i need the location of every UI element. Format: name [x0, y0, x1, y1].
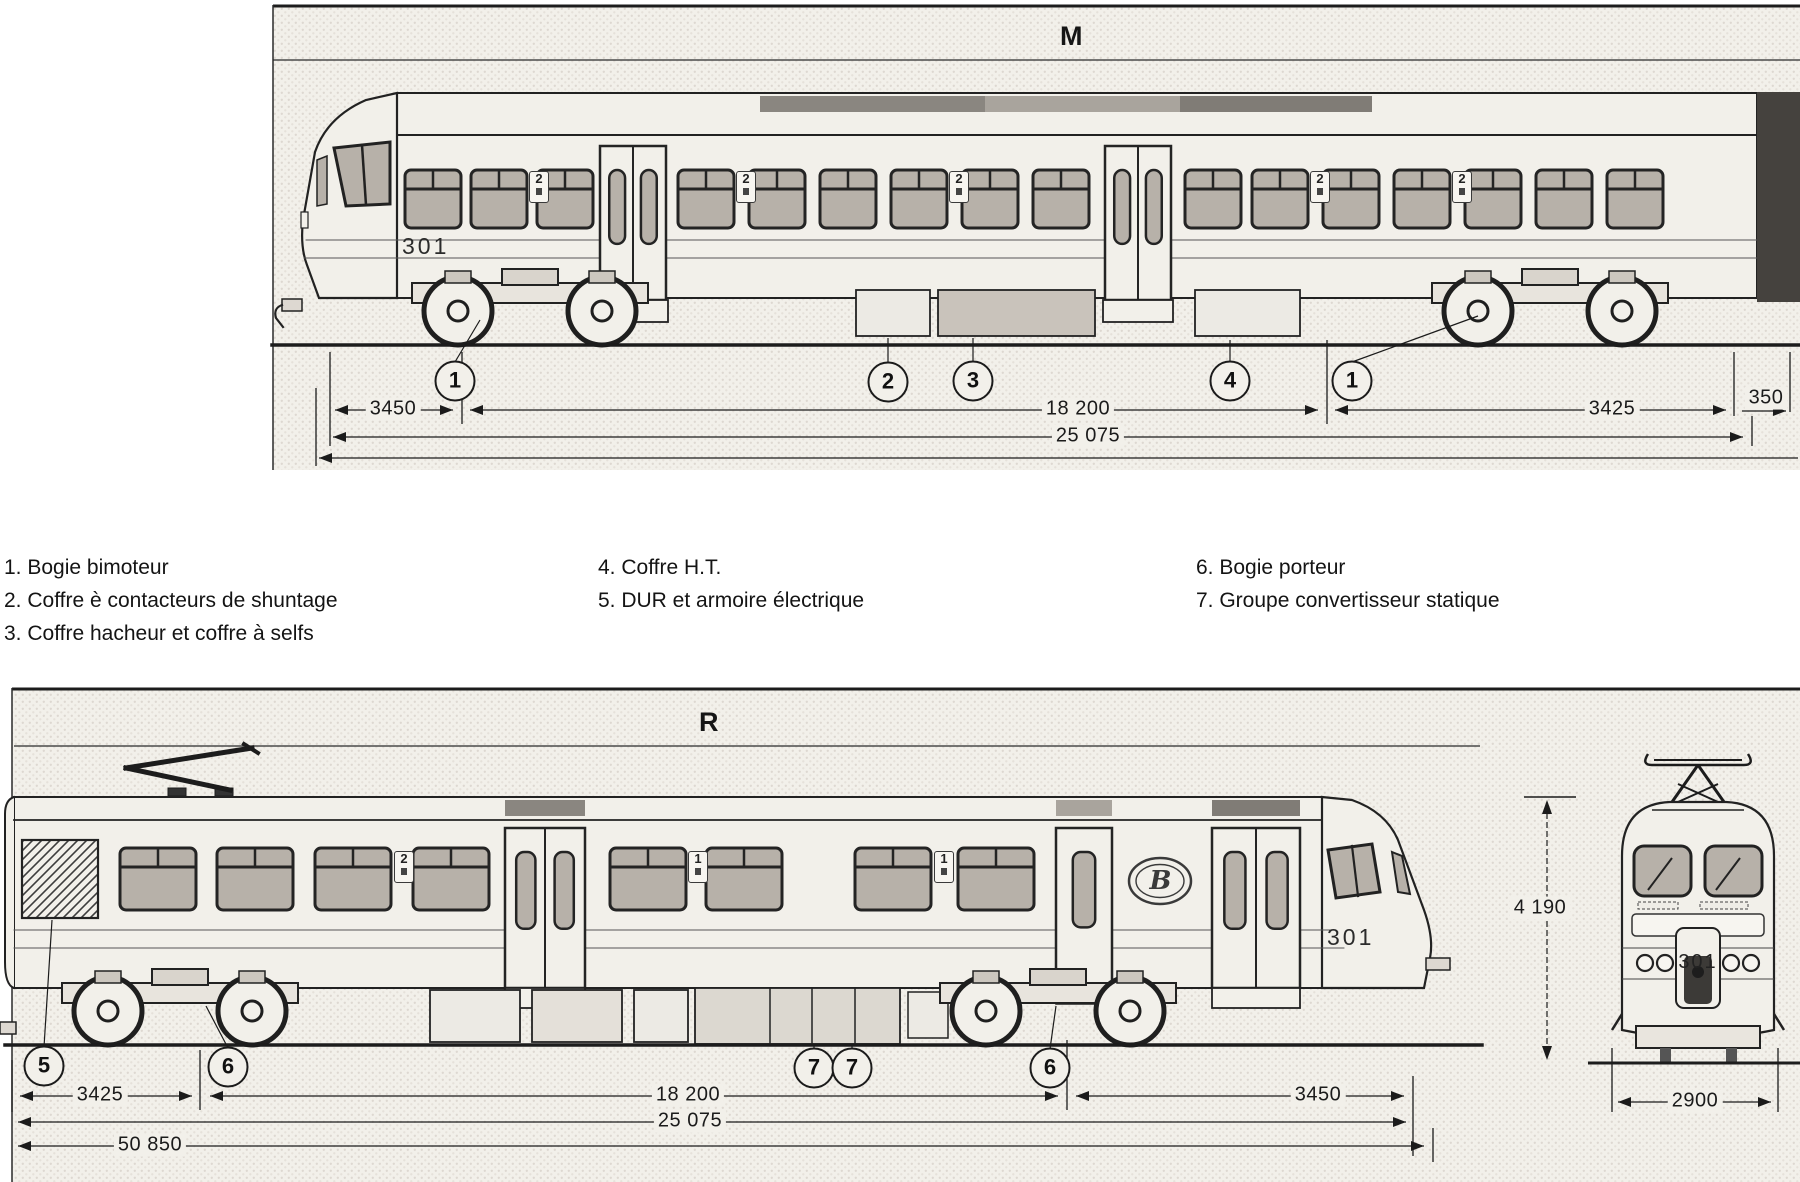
- legend-item: 2. Coffre è contacteurs de shuntage: [4, 584, 338, 617]
- door-window: [516, 852, 535, 929]
- axlebox: [589, 271, 615, 283]
- dimension-label: 2900: [1668, 1090, 1723, 1113]
- bogie-bolster: [152, 969, 208, 985]
- legend-item: 7. Groupe convertisseur statique: [1196, 584, 1500, 617]
- legend-item: 5. DUR et armoire électrique: [598, 584, 864, 617]
- front-car-number: 301: [1668, 951, 1728, 974]
- m-roof-strip: [760, 96, 985, 112]
- callout-3: 3: [953, 361, 994, 402]
- door-window: [1114, 170, 1130, 244]
- legend-item: 1. Bogie bimoteur: [4, 551, 338, 584]
- wheel-hub: [242, 1001, 262, 1021]
- legend-item: 6. Bogie porteur: [1196, 551, 1500, 584]
- dimension-label: 350: [1745, 387, 1788, 410]
- m-equipment-box-ht: [1195, 290, 1300, 336]
- bogie-bolster: [502, 269, 558, 285]
- diagram-r-title: R: [699, 707, 719, 738]
- callout-4: 4: [1210, 361, 1251, 402]
- legend: 1. Bogie bimoteur2. Coffre è contacteurs…: [0, 551, 1800, 671]
- class-marker-2: 2: [949, 171, 969, 203]
- dimension-label: 3450: [366, 398, 421, 421]
- wheel-hub: [976, 1001, 996, 1021]
- r-door-step: [1212, 988, 1300, 1008]
- m-cab-side-window: [317, 156, 327, 206]
- dimension-label: 3425: [73, 1084, 128, 1107]
- front-light: [1743, 955, 1759, 971]
- m-equipment-box-hacheur-selfs: [938, 290, 1095, 336]
- r-roof-strip: [1056, 800, 1112, 816]
- door-window: [1146, 170, 1162, 244]
- legend-column-1: 1. Bogie bimoteur2. Coffre è contacteurs…: [4, 551, 338, 650]
- callout-6: 6: [1030, 1048, 1071, 1089]
- r-equipment-box-convertisseur: [695, 988, 900, 1044]
- m-roof-strip: [1180, 96, 1372, 112]
- axlebox: [1609, 271, 1635, 283]
- door-window: [609, 170, 625, 244]
- dimension-label: 3450: [1291, 1084, 1346, 1107]
- class-marker-2: 2: [736, 171, 756, 203]
- r-car-number: 301: [1327, 924, 1374, 951]
- axlebox: [239, 971, 265, 983]
- wheel-hub: [98, 1001, 118, 1021]
- m-coupler: [282, 299, 302, 311]
- m-gangway-end: [1757, 92, 1800, 302]
- legend-item: 3. Coffre hacheur et coffre à selfs: [4, 617, 338, 650]
- callout-5: 5: [24, 1046, 65, 1087]
- sncb-logo-letter: B: [1147, 864, 1174, 898]
- r-hatched-box-dur: [22, 840, 98, 918]
- class-marker-1: 1: [934, 851, 954, 883]
- class-marker-2: 2: [394, 851, 414, 883]
- door-window: [1073, 852, 1095, 927]
- class-marker-2: 2: [529, 171, 549, 203]
- door-window: [1267, 852, 1288, 929]
- axlebox: [95, 971, 121, 983]
- callout-7: 7: [832, 1048, 873, 1089]
- r-tail-coupler: [0, 1022, 16, 1034]
- axlebox: [973, 971, 999, 983]
- train-technical-drawing-page: M R 301 301 301 B 1. Bogie bimoteur2. Co…: [0, 0, 1800, 1182]
- diagram-m-title: M: [1060, 21, 1083, 52]
- dimension-label: 25 075: [654, 1110, 726, 1133]
- callout-6: 6: [208, 1047, 249, 1088]
- wheel-hub: [1612, 301, 1632, 321]
- dimension-label: 18 200: [1042, 398, 1114, 421]
- class-marker-2: 2: [1310, 171, 1330, 203]
- dimension-label: 25 075: [1052, 425, 1124, 448]
- r-roof-strip: [1212, 800, 1300, 816]
- front-buffer-beam: [1636, 1026, 1760, 1048]
- callout-1: 1: [1332, 361, 1373, 402]
- wheel-hub: [592, 301, 612, 321]
- legend-column-3: 6. Bogie porteur7. Groupe convertisseur …: [1196, 551, 1500, 617]
- class-marker-2: 2: [1452, 171, 1472, 203]
- dimension-label: 3425: [1585, 398, 1640, 421]
- wheel-hub: [448, 301, 468, 321]
- m-roof-strip: [985, 96, 1180, 112]
- r-coupler: [1426, 958, 1450, 970]
- door-window: [1224, 852, 1245, 929]
- callout-7: 7: [794, 1048, 835, 1089]
- axlebox: [1117, 971, 1143, 983]
- bogie-bolster: [1030, 969, 1086, 985]
- bogie-bolster: [1522, 269, 1578, 285]
- front-marker-strip: [1700, 902, 1748, 909]
- class-marker-1: 1: [688, 851, 708, 883]
- dimension-label: 50 850: [114, 1134, 186, 1157]
- m-door-step: [1103, 300, 1173, 322]
- r-tail-end: [5, 797, 14, 988]
- front-light: [1637, 955, 1653, 971]
- axlebox: [445, 271, 471, 283]
- door-window: [555, 852, 574, 929]
- r-equipment-box: [634, 990, 688, 1042]
- callout-1: 1: [435, 361, 476, 402]
- m-headlight: [301, 212, 308, 228]
- front-windshield-right: [1705, 846, 1762, 896]
- m-equipment-box-shuntage: [856, 290, 930, 336]
- legend-column-2: 4. Coffre H.T.5. DUR et armoire électriq…: [598, 551, 864, 617]
- legend-item: 4. Coffre H.T.: [598, 551, 864, 584]
- dimension-label: 4 190: [1510, 897, 1571, 920]
- r-roof-strip: [505, 800, 585, 816]
- r-equipment-box: [532, 990, 622, 1042]
- callout-2: 2: [868, 362, 909, 403]
- r-equipment-box: [430, 990, 520, 1042]
- dimension-label: 18 200: [652, 1084, 724, 1107]
- front-marker-strip: [1638, 902, 1678, 909]
- m-car-number: 301: [402, 233, 449, 260]
- door-window: [641, 170, 657, 244]
- wheel-hub: [1120, 1001, 1140, 1021]
- axlebox: [1465, 271, 1491, 283]
